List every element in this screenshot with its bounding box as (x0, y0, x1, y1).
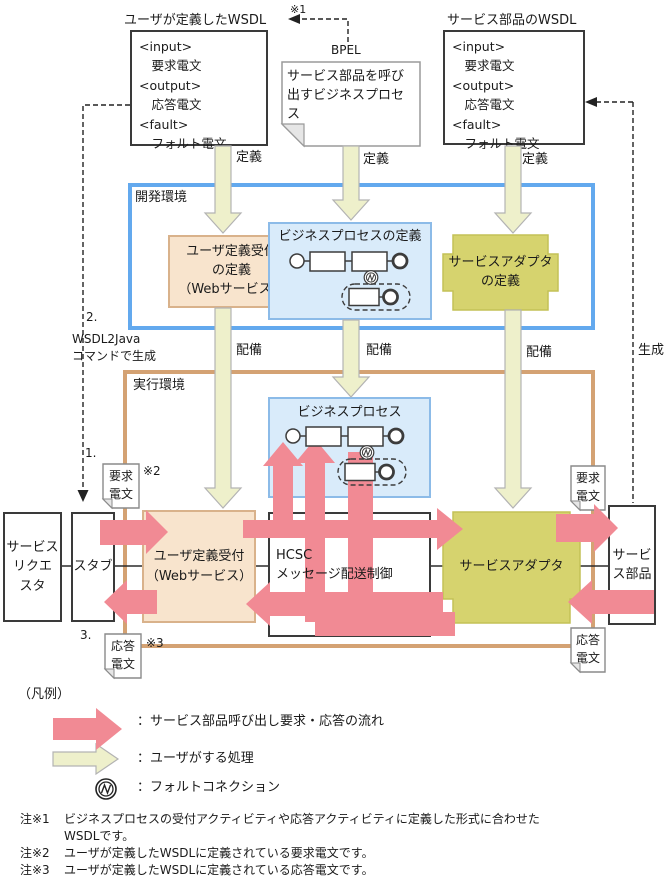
dashed-line-bpel-to-user-wsdl (300, 19, 348, 42)
bp-runtime-title: ビジネスプロセス (270, 399, 429, 422)
define-label-1: 定義 (236, 150, 262, 167)
step2-label: 2. (86, 310, 97, 326)
footnote-1-label: 注※1 (20, 811, 50, 828)
wsdl2java-label: WSDL2Java コマンドで生成 (72, 331, 156, 365)
deploy-label-3: 配備 (526, 345, 552, 362)
stub-label: スタブ (73, 559, 112, 576)
svc-wsdl-title: サービス部品のWSDL (447, 13, 576, 30)
service-component-box: サービ ス部品 (608, 505, 656, 625)
arrowhead-down-icon (78, 490, 89, 502)
user-wsdl-box: <input> 要求電文 <output> 応答電文 <fault> フォルト電… (130, 30, 268, 146)
legend-pink-arrow-icon (53, 708, 122, 750)
svc-wsdl-box: <input> 要求電文 <output> 応答電文 <fault> フォルト電… (443, 30, 585, 145)
footnote-3-text: ユーザが定義したWSDLに定義されている応答電文です。 (64, 862, 654, 879)
user-def-runtime-label: ユーザ定義受付 （Webサービス） (146, 547, 252, 586)
svc-wsdl-body: <input> 要求電文 <output> 応答電文 <fault> フォルト電… (452, 39, 540, 151)
footnote-2-label: 注※2 (20, 845, 50, 862)
stub-box: スタブ (71, 512, 115, 622)
service-requester-box: サービス リクエ スタ (3, 512, 62, 622)
legend-fault-text: ：フォルトコネクション (137, 780, 280, 797)
bp-definition-title: ビジネスプロセスの定義 (270, 224, 430, 246)
step1-label: 1. (85, 446, 96, 462)
legend-green-text: ：ユーザがする処理 (137, 751, 254, 768)
footnote-2-text: ユーザが定義したWSDLに定義されている要求電文です。 (64, 845, 654, 862)
generate-label: 生成 (638, 343, 664, 360)
run-env-label: 実行環境 (133, 378, 185, 395)
flag-response-right-text: 応答 電文 (574, 631, 602, 667)
legend-pink-text: ：サービス部品呼び出し要求・応答の流れ (137, 714, 384, 731)
bp-runtime-box: ビジネスプロセス (268, 397, 431, 498)
deploy-label-1: 配備 (236, 343, 262, 360)
bpel-note-text: サービス部品を呼び出すビジネスプロセス (287, 68, 415, 125)
service-adapter-definition-label: サービスアダプタ の定義 (443, 235, 558, 310)
bp-definition-box: ビジネスプロセスの定義 (268, 222, 432, 320)
arrowhead-left-icon (585, 97, 597, 107)
ref1-label: ※1 (290, 3, 306, 17)
user-wsdl-body: <input> 要求電文 <output> 応答電文 <fault> フォルト電… (139, 39, 227, 151)
deploy-label-2: 配備 (366, 343, 392, 360)
user-wsdl-title: ユーザが定義したWSDL (124, 13, 266, 30)
step3-label: 3. (80, 628, 91, 644)
define-label-2: 定義 (363, 152, 389, 169)
flag-request-right-text: 要求 電文 (574, 469, 602, 505)
footnote-1-text: ビジネスプロセスの受付アクティビティや応答アクティビティに定義した形式に合わせた… (64, 811, 654, 846)
ref2-label: ※2 (143, 464, 161, 480)
diagram-canvas: <input> 要求電文 <output> 応答電文 <fault> フォルト電… (0, 0, 669, 883)
legend-fault-connection-icon (96, 779, 116, 799)
service-adapter-runtime-label: サービスアダプタ (443, 512, 580, 623)
dev-env-label: 開発環境 (135, 190, 187, 207)
footnote-3-label: 注※3 (20, 862, 50, 879)
legend-green-arrow-icon (53, 744, 118, 774)
flag-response-left-text: 応答 電文 (109, 637, 137, 673)
user-def-runtime-box: ユーザ定義受付 （Webサービス） (142, 510, 256, 623)
hcsc-label: HCSC メッセージ配送制御 (276, 547, 393, 585)
flag-request-left-text: 要求 電文 (107, 467, 135, 503)
define-label-3: 定義 (522, 152, 548, 169)
legend-title: （凡例） (18, 687, 70, 704)
ref3-label: ※3 (146, 636, 164, 652)
service-requester-label: サービス リクエ スタ (6, 538, 58, 597)
bpel-label: BPEL (331, 43, 361, 59)
service-component-label: サービ ス部品 (612, 546, 651, 585)
